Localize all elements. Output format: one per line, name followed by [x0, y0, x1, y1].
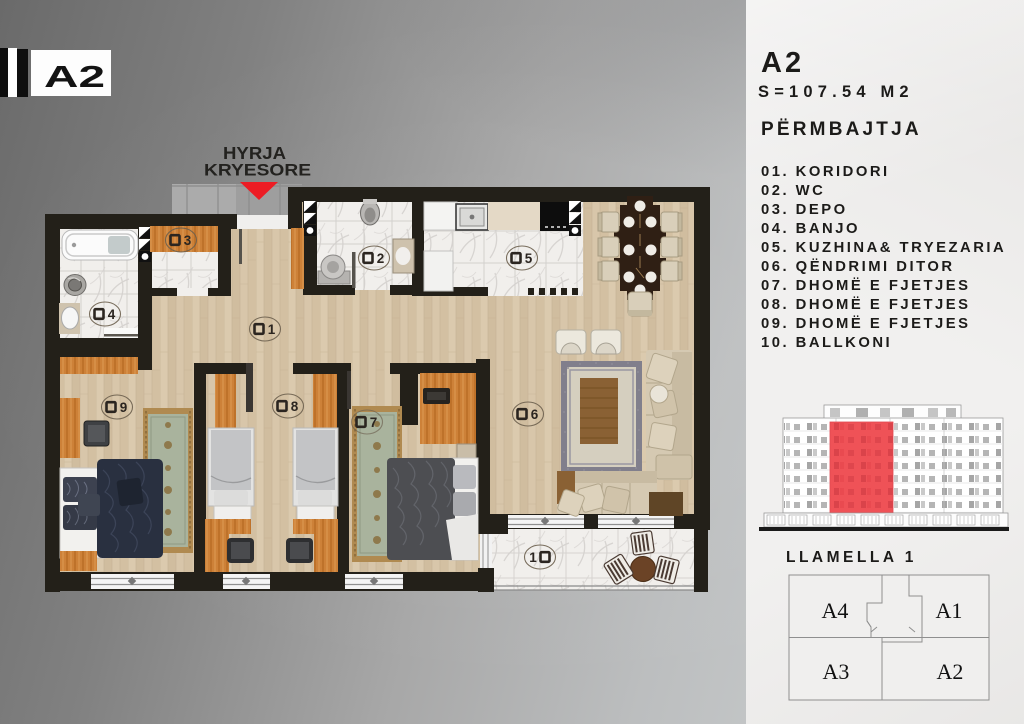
svg-text:6: 6	[531, 407, 539, 422]
svg-text:A2: A2	[937, 659, 964, 684]
svg-text:4: 4	[108, 307, 116, 322]
svg-text:1: 1	[268, 322, 276, 337]
svg-text:8: 8	[291, 399, 299, 414]
svg-text:3: 3	[184, 233, 192, 248]
svg-text:A2: A2	[44, 59, 105, 94]
svg-text:KRYESORE: KRYESORE	[204, 161, 311, 180]
svg-text:5: 5	[525, 251, 533, 266]
svg-text:A4: A4	[822, 598, 849, 623]
svg-text:2: 2	[377, 251, 385, 266]
svg-text:7: 7	[370, 415, 378, 430]
svg-text:A3: A3	[823, 659, 850, 684]
svg-text:A1: A1	[936, 598, 963, 623]
svg-text:9: 9	[120, 400, 128, 415]
svg-text:1: 1	[529, 550, 537, 565]
